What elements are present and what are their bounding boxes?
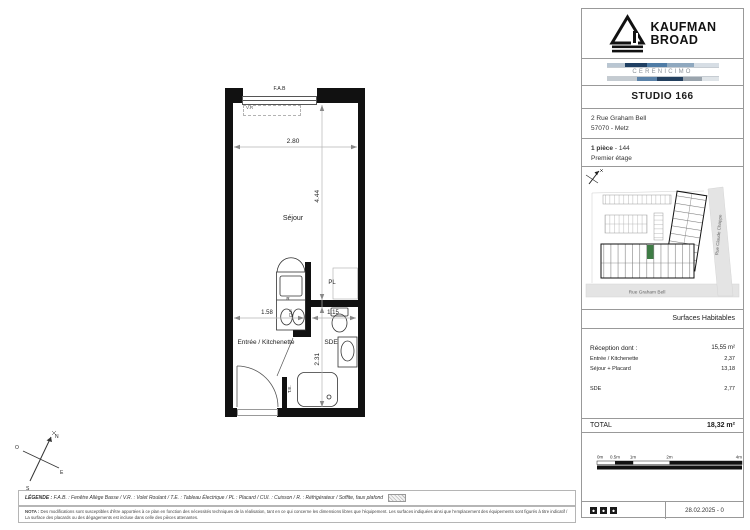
site-map: Rue Graham Bell Rue Claude Chappe (582, 166, 743, 309)
distributor-logo: CERENICIMO (582, 58, 743, 85)
rooms-lot: - 144 (613, 145, 630, 152)
legend-box: LÉGENDE : F.A.B. : Fenêtre Allège Basse … (18, 490, 576, 506)
plan-sheet: N O E S F.A.B V.R 2.80 4.44 Séjour PL R … (0, 0, 750, 530)
scale-tick-1: 1m (630, 455, 637, 460)
shower-tray (298, 373, 338, 407)
dim-width-right: 1.15 (318, 310, 348, 316)
legend-title: LÉGENDE : (25, 495, 52, 501)
wall (225, 408, 237, 417)
nota-box: NOTA : Des modifications sont susceptibl… (18, 506, 576, 523)
surfaces-table: Réception dont : 15,55 m² Entrée / Kitch… (582, 328, 743, 418)
address-line1: 2 Rue Graham Bell (591, 114, 743, 124)
total-value: 18,32 m² (707, 422, 735, 429)
address: 2 Rue Graham Bell 57070 - Metz (582, 108, 743, 138)
legend-text: F.A.B. : Fenêtre Allège Basse / V.R. : V… (52, 495, 383, 501)
revision-date: 28.02.2025 - 0 (665, 502, 743, 519)
scale-bar: 0m 0.5m 1m 2m 4m (582, 433, 743, 501)
building-lower-wing (601, 244, 694, 278)
parking-stalls (603, 195, 671, 240)
surface-label: Séjour + Placard (590, 366, 631, 372)
footer-row: 28.02.2025 - 0 (582, 501, 743, 519)
title-block: KAUFMAN BROAD CERENICIMO STUDIO 166 2 Ru… (581, 8, 744, 518)
scale-tick-4: 4m (736, 455, 743, 460)
surface-value: 13,18 (721, 366, 735, 372)
surface-label: SDE (590, 386, 601, 392)
surface-label: Entrée / Kitchenette (590, 356, 638, 362)
rooms-line: 1 pièce - 144 (591, 144, 743, 154)
scale-tick-0: 0m (597, 455, 604, 460)
wall (310, 300, 358, 307)
unit-type: 1 pièce - 144 Premier étage (582, 138, 743, 166)
nota-title: NOTA : (25, 509, 39, 514)
rooms-count: 1 pièce (591, 145, 613, 152)
room-label-sejour: Séjour (263, 215, 323, 222)
surface-row: Réception dont : 15,55 m² (582, 345, 743, 352)
brand-line1: KAUFMAN (651, 21, 717, 34)
surface-value: 2,37 (724, 356, 735, 362)
total-label: TOTAL (590, 422, 612, 429)
north-arrow-icon (586, 169, 603, 184)
dimension-arrows (234, 105, 357, 407)
wall (225, 88, 233, 417)
window-fab (242, 96, 317, 105)
cooktop-label: CUI (289, 306, 294, 320)
distributor-name: CERENICIMO (607, 67, 719, 77)
brand-line2: BROAD (651, 34, 717, 47)
street-label-bottom: Rue Graham Bell (629, 290, 666, 296)
surface-value: 2,77 (724, 386, 735, 392)
kaufman-broad-logo-icon (609, 14, 646, 53)
surface-label: Réception dont : (590, 345, 637, 352)
total-row: TOTAL 18,32 m² (582, 418, 743, 433)
address-line2: 57070 - Metz (591, 124, 743, 134)
wall (277, 408, 365, 417)
soffit-hatch-swatch (388, 494, 406, 502)
floor-label: Premier étage (591, 154, 743, 164)
brand-name: KAUFMAN BROAD (651, 21, 717, 47)
dimension-lines (234, 105, 357, 407)
room-label-pl: PL (322, 280, 342, 286)
dim-width-left: 1.58 (252, 310, 282, 316)
room-label-sde: SDE (321, 340, 341, 347)
room-label-entree: Entrée / Kitchenette (226, 340, 306, 347)
surface-row: Séjour + Placard 13,18 (582, 366, 743, 372)
certification-icon (610, 507, 617, 514)
compass-o: O (15, 445, 19, 451)
window-label: F.A.B (242, 87, 317, 92)
surface-row: Entrée / Kitchenette 2,37 (582, 356, 743, 362)
compass-e: E (60, 470, 64, 476)
dim-height-sejour: 4.44 (315, 184, 322, 208)
scale-tick-2: 2m (666, 455, 673, 460)
nota-text: Des modifications sont susceptibles d'êt… (25, 509, 567, 520)
certification-icon (590, 507, 597, 514)
electrical-panel-label: T.E. (288, 382, 293, 396)
compass-n: N (55, 434, 59, 440)
fridge-label: R (283, 297, 293, 302)
wall (293, 330, 311, 337)
entry-door-threshold (237, 409, 278, 416)
certification-icon (600, 507, 607, 514)
brand-header: KAUFMAN BROAD (582, 9, 743, 58)
compass-rose-icon: N O E S (15, 431, 64, 492)
dim-height-sde: 2.31 (315, 347, 322, 371)
shutter-label: V.R (246, 106, 253, 111)
distributor-bar-bottom (607, 77, 719, 81)
road-right (708, 187, 733, 296)
dim-width-top: 2.80 (278, 139, 308, 146)
surface-row: SDE 2,77 (582, 386, 743, 392)
surfaces-header: Surfaces Habitables (582, 309, 743, 328)
entry-door-arc (237, 366, 278, 407)
scale-tick-05: 0.5m (610, 455, 620, 460)
wall (358, 88, 365, 417)
unit-title: STUDIO 166 (582, 85, 743, 108)
window-mullion (243, 100, 316, 101)
surface-value: 15,55 m² (711, 345, 735, 352)
